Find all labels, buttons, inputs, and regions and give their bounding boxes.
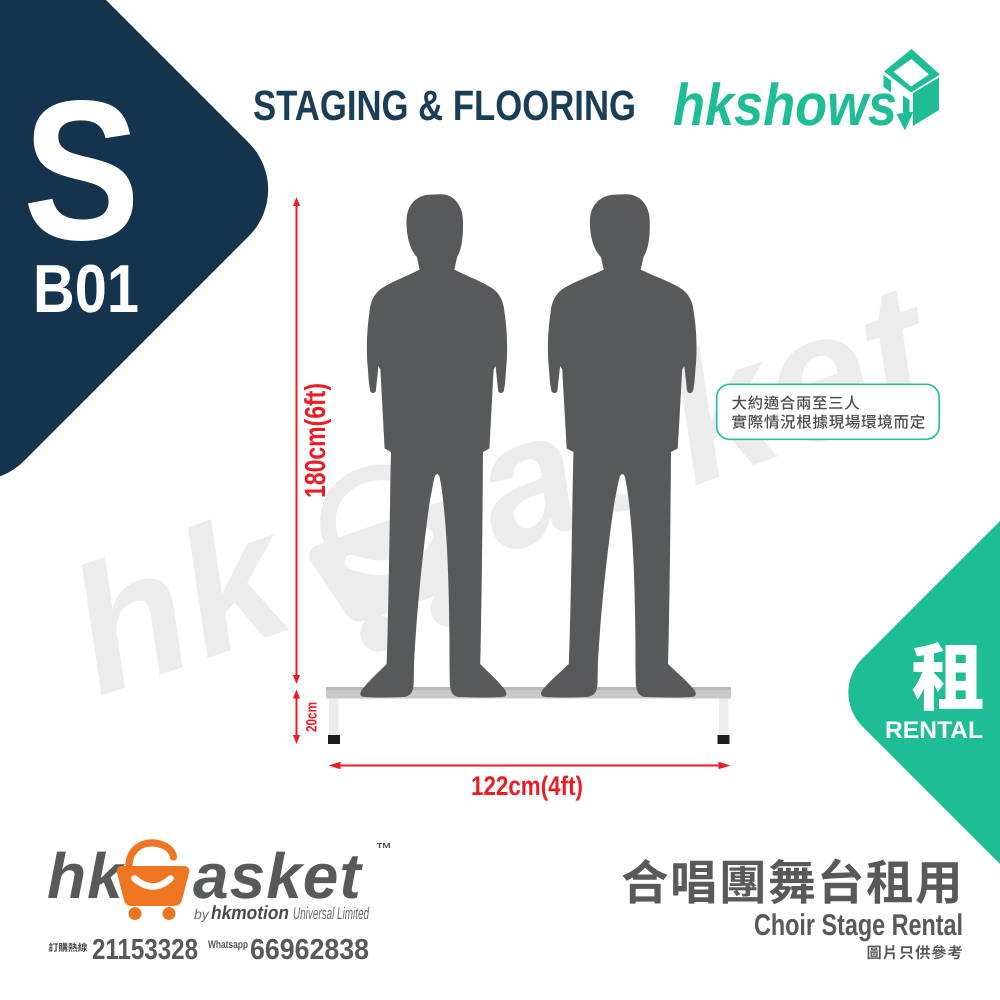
svg-text:Choir Stage Rental: Choir Stage Rental <box>754 909 963 942</box>
svg-text:180cm(6ft): 180cm(6ft) <box>300 383 332 498</box>
svg-text:hkshows: hkshows <box>673 72 897 138</box>
svg-text:asket: asket <box>193 840 363 912</box>
svg-text:Universal Limited: Universal Limited <box>293 904 369 923</box>
svg-text:RENTAL: RENTAL <box>885 717 983 744</box>
svg-text:™: ™ <box>376 841 392 858</box>
svg-text:hk: hk <box>47 840 126 912</box>
svg-text:S: S <box>23 60 140 282</box>
svg-text:122cm(4ft): 122cm(4ft) <box>471 771 583 801</box>
svg-text:B01: B01 <box>33 251 139 327</box>
svg-text:21153328: 21153328 <box>92 934 198 966</box>
svg-text:STAGING & FLOORING: STAGING & FLOORING <box>253 83 636 130</box>
svg-text:66962838: 66962838 <box>250 934 369 966</box>
svg-text:20cm: 20cm <box>304 702 321 732</box>
svg-text:Whatsapp: Whatsapp <box>208 939 248 951</box>
svg-text:hkmotion: hkmotion <box>211 903 289 924</box>
svg-text:by: by <box>194 906 210 922</box>
